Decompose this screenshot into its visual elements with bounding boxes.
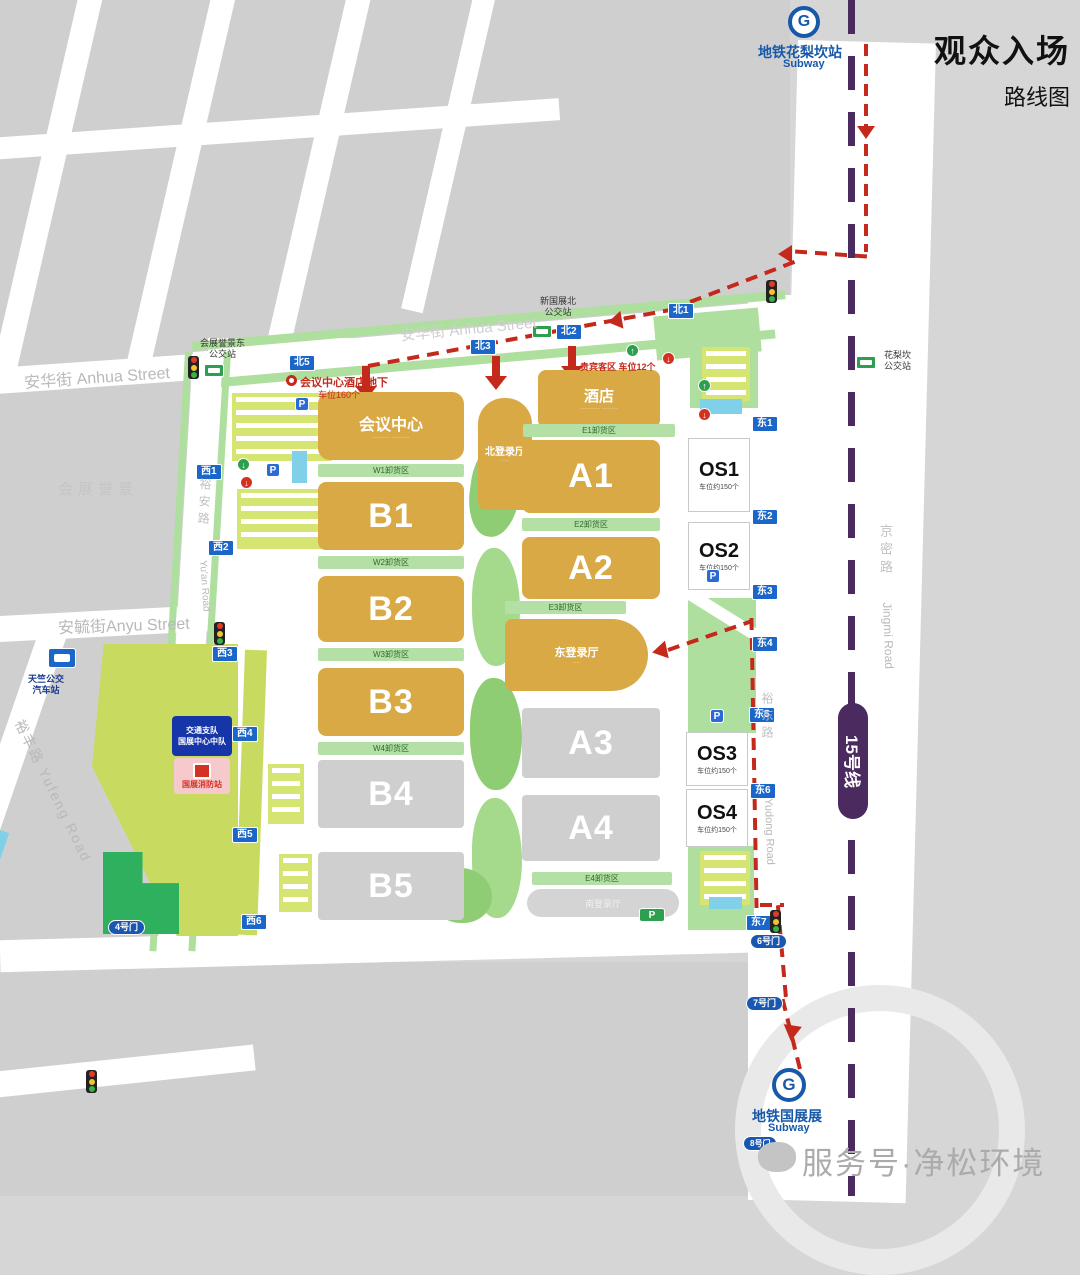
subway-logo-bottom: G	[772, 1068, 806, 1102]
metro-line-15	[848, 0, 855, 1196]
hall-dongdengluting-label: 东登录厅	[555, 644, 599, 660]
hall-beidengluting-label: 北登录厅	[485, 443, 525, 458]
pool-west	[292, 451, 307, 483]
gate-dong6[interactable]: 东6	[750, 783, 776, 799]
hotel-underground-cap: 车位160个	[318, 388, 360, 401]
door-7[interactable]: 7号门	[746, 996, 783, 1011]
street-jingmi-label-en: Jingmi Road	[880, 602, 896, 669]
traffic-light-anhua	[188, 356, 199, 379]
metro-line-15-label: 15号线	[841, 735, 866, 788]
bus-stop-xinguozhan-label: 新国展北公交站	[540, 296, 576, 318]
hall-huiyizhongxin-subtext: ········· ·········	[372, 435, 410, 442]
hotel-underground-icon	[286, 375, 297, 386]
hall-b5[interactable]: B5	[318, 852, 464, 920]
hall-huiyizhongxin[interactable]: 会议中心 ········· ·········	[318, 392, 464, 460]
hall-b2[interactable]: B2	[318, 576, 464, 642]
hall-hotel[interactable]: 酒店 ·········· ········	[538, 370, 660, 428]
bus-stop-tianzhu-icon	[48, 648, 76, 668]
route-arrow-down-top	[857, 126, 875, 139]
unloading-e2: E2卸货区	[522, 518, 660, 531]
gate-xi3[interactable]: 西3	[212, 646, 238, 662]
traffic-police-sign: 交通支队国展中心中队	[172, 716, 232, 756]
hall-b2-label: B2	[368, 590, 413, 629]
hall-a4[interactable]: A4	[522, 795, 660, 861]
garden-blob-3	[470, 678, 522, 790]
door-6[interactable]: 6号门	[750, 934, 787, 949]
hall-hotel-label: 酒店	[584, 385, 614, 406]
traffic-light-anyu	[214, 622, 225, 645]
vip-parking-note: 贵宾客区 车位12个	[580, 360, 656, 373]
parking-lot-w4	[279, 854, 312, 912]
gate-xi6[interactable]: 西6	[241, 914, 267, 930]
street-yudong-label-cn: 裕东路	[759, 692, 776, 743]
gate-dong7[interactable]: 东7	[746, 915, 772, 931]
hall-dongdengluting-subtext: ····	[573, 660, 581, 667]
hall-nandengluting-label: 南登录厅	[585, 897, 621, 910]
metro-line-15-badge: 15号线	[838, 703, 868, 819]
unloading-e3: E3卸货区	[505, 601, 626, 614]
traffic-light-north	[766, 280, 777, 303]
route-seg-e7	[760, 903, 784, 907]
fire-station-icon	[193, 763, 211, 779]
exit-arrow-1: ↓	[240, 476, 253, 489]
hall-hotel-subtext: ·········· ········	[580, 406, 618, 413]
bus-stop-huizhan-label: 会展誉景东公交站	[200, 338, 245, 360]
unloading-w1: W1卸货区	[318, 464, 464, 477]
parking-lot-w3	[268, 764, 304, 824]
bus-stop-hualikan-icon	[856, 356, 876, 369]
street-jingmi-label-cn: 京密路	[876, 524, 895, 578]
gate-xi2[interactable]: 西2	[208, 540, 234, 556]
exhibition-route-map: { "title":{"main":"观众入场","sub":"路线图"}, "…	[0, 0, 1080, 1196]
gate-dong1[interactable]: 东1	[752, 416, 778, 432]
fire-station-label: 国展消防站	[182, 779, 222, 790]
entry-arrow-1: ↓	[237, 458, 250, 471]
hall-a4-label: A4	[568, 809, 613, 848]
subway-top-en: Subway	[783, 58, 825, 70]
unloading-w2: W2卸货区	[318, 556, 464, 569]
hall-b1-label: B1	[368, 497, 413, 536]
bus-stop-tianzhu-label: 天竺公交汽车站	[28, 674, 64, 696]
hall-huiyizhongxin-label: 会议中心	[359, 411, 423, 435]
pool-east2	[709, 897, 742, 909]
hall-beidengluting-subtext: ····	[501, 458, 509, 465]
subway-bottom-en: Subway	[768, 1122, 810, 1134]
map-title-sub: 路线图	[920, 80, 1070, 112]
door-4[interactable]: 4号门	[108, 920, 145, 935]
wechat-icon	[758, 1142, 796, 1172]
os4-lot[interactable]: OS4车位约150个	[686, 789, 748, 847]
bus-stop-hualikan-label: 花梨坎公交站	[884, 350, 911, 372]
entry-arrow-2: ↑	[698, 379, 711, 392]
gate-dong4[interactable]: 东4	[752, 636, 778, 652]
traffic-light-southwest	[86, 1070, 97, 1093]
gate-bei5[interactable]: 北5	[289, 355, 315, 371]
route-arrow-left-2	[607, 311, 624, 331]
parking-icon-3: P	[706, 569, 720, 583]
subway-logo-top: G	[788, 6, 820, 38]
hall-dongdengluting[interactable]: 东登录厅 ····	[505, 619, 648, 691]
hall-a2-label: A2	[568, 549, 613, 588]
area-huizhanyujing-label: 会展誉景	[58, 478, 138, 499]
bus-icon	[54, 654, 70, 662]
hall-a3-label: A3	[568, 724, 613, 763]
hall-a1[interactable]: A1	[522, 440, 660, 513]
exit-arrow-3: ↓	[662, 352, 675, 365]
hall-a1-label: A1	[568, 457, 613, 496]
unloading-e1: E1卸货区	[523, 424, 675, 437]
entry-arrow-3: ↑	[626, 344, 639, 357]
map-title-main: 观众入场	[920, 26, 1070, 72]
unloading-w3: W3卸货区	[318, 648, 464, 661]
route-arrow-bei	[492, 356, 500, 376]
watermark: 服务号·净松环境	[802, 1138, 1045, 1183]
parking-icon-1: P	[295, 397, 309, 411]
hall-a2[interactable]: A2	[522, 537, 660, 599]
traffic-light-dong7	[770, 910, 781, 933]
unloading-w4: W4卸货区	[318, 742, 464, 755]
hall-b3-label: B3	[368, 683, 413, 722]
parking-icon-4: P	[710, 709, 724, 723]
unloading-e4: E4卸货区	[532, 872, 672, 885]
parking-lot-ne	[702, 347, 750, 401]
map-title: 观众入场 路线图	[920, 26, 1070, 112]
gate-dong2[interactable]: 东2	[752, 509, 778, 525]
route-north-vertical	[864, 44, 868, 252]
gate-xi5[interactable]: 西5	[232, 827, 258, 843]
parking-lot-nw1	[232, 393, 332, 461]
hall-b5-label: B5	[368, 867, 413, 906]
gate-bei3[interactable]: 北3	[470, 339, 496, 355]
street-yudong-label-en: Yudong Road	[762, 798, 776, 865]
route-arrow-bei-head	[485, 376, 507, 390]
fire-station-sign: 国展消防站	[174, 758, 230, 794]
hall-b3[interactable]: B3	[318, 668, 464, 736]
os1-lot[interactable]: OS1车位约150个	[688, 438, 750, 512]
street-anyu-label: 安毓街Anyu Street	[58, 610, 190, 639]
parking-icon-2: P	[266, 463, 280, 477]
gate-bei2[interactable]: 北2	[556, 324, 582, 340]
hall-b4-label: B4	[368, 775, 413, 814]
hall-a3[interactable]: A3	[522, 708, 660, 778]
hall-b1[interactable]: B1	[318, 482, 464, 550]
hall-b4[interactable]: B4	[318, 760, 464, 828]
parking-icon-5: P	[639, 908, 665, 922]
os3-lot[interactable]: OS3车位约150个	[686, 732, 748, 786]
bus-stop-huizhan-icon	[204, 364, 224, 377]
exit-arrow-2: ↓	[698, 408, 711, 421]
street-yuan-label-cn: 裕安路	[195, 478, 215, 530]
gate-dong3[interactable]: 东3	[752, 584, 778, 600]
gate-bei1[interactable]: 北1	[668, 303, 694, 319]
route-arrow-hotel	[568, 346, 576, 366]
gate-xi4[interactable]: 西4	[232, 726, 258, 742]
